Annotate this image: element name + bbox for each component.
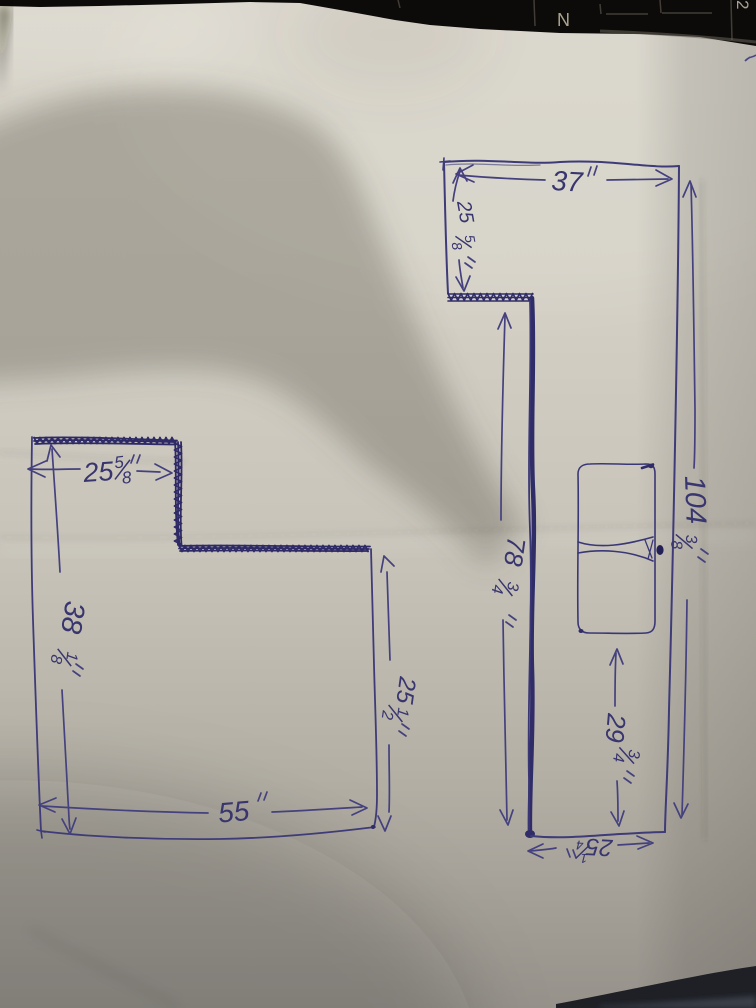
svg-text:2: 2 xyxy=(733,0,752,9)
svg-text:8: 8 xyxy=(667,540,684,550)
svg-text:25: 25 xyxy=(390,674,421,706)
svg-text:38: 38 xyxy=(54,599,91,636)
svg-text:104: 104 xyxy=(678,475,712,524)
svg-text:N: N xyxy=(557,10,570,30)
svg-text:25: 25 xyxy=(81,456,115,488)
svg-text:25: 25 xyxy=(585,833,615,861)
svg-text:4: 4 xyxy=(576,838,584,853)
svg-text:25: 25 xyxy=(452,198,478,226)
svg-text:55: 55 xyxy=(217,795,251,829)
svg-text:4: 4 xyxy=(609,753,627,763)
svg-text:37: 37 xyxy=(551,165,585,198)
svg-text:78: 78 xyxy=(498,535,532,568)
svg-text:29: 29 xyxy=(600,711,632,743)
